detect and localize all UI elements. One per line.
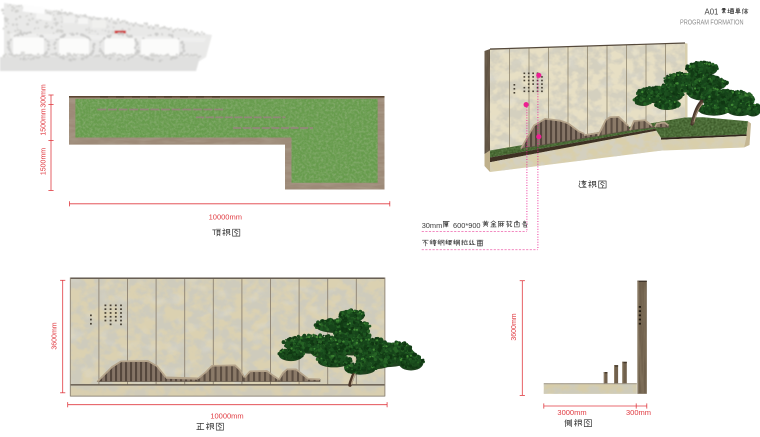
svg-text:600*900: 600*900 — [453, 221, 481, 230]
svg-text:10000mm: 10000mm — [209, 213, 242, 222]
svg-text:30mm: 30mm — [422, 221, 443, 230]
svg-text:PROGRAM FORMATION: PROGRAM FORMATION — [680, 20, 744, 27]
svg-text:1500mm: 1500mm — [41, 108, 48, 135]
svg-text:300mm: 300mm — [41, 84, 48, 108]
svg-text:1500mm: 1500mm — [41, 148, 48, 175]
svg-text:A01: A01 — [705, 8, 719, 17]
